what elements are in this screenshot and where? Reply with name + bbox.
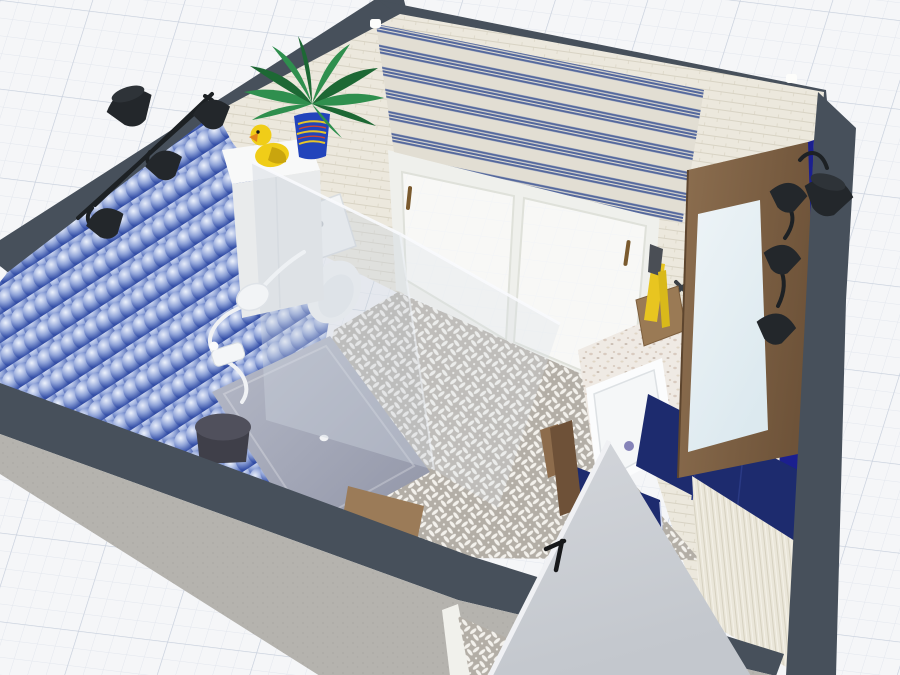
duck-eye	[256, 130, 259, 133]
sink-drain	[624, 441, 634, 451]
stool-top	[195, 414, 251, 441]
blind-bracket-right	[786, 74, 797, 83]
3d-viewport[interactable]	[0, 0, 900, 675]
blind-bracket-left	[370, 19, 381, 28]
shower-stool[interactable]	[195, 414, 251, 465]
mirror-glass	[688, 200, 768, 452]
mixer-knob	[210, 342, 219, 351]
